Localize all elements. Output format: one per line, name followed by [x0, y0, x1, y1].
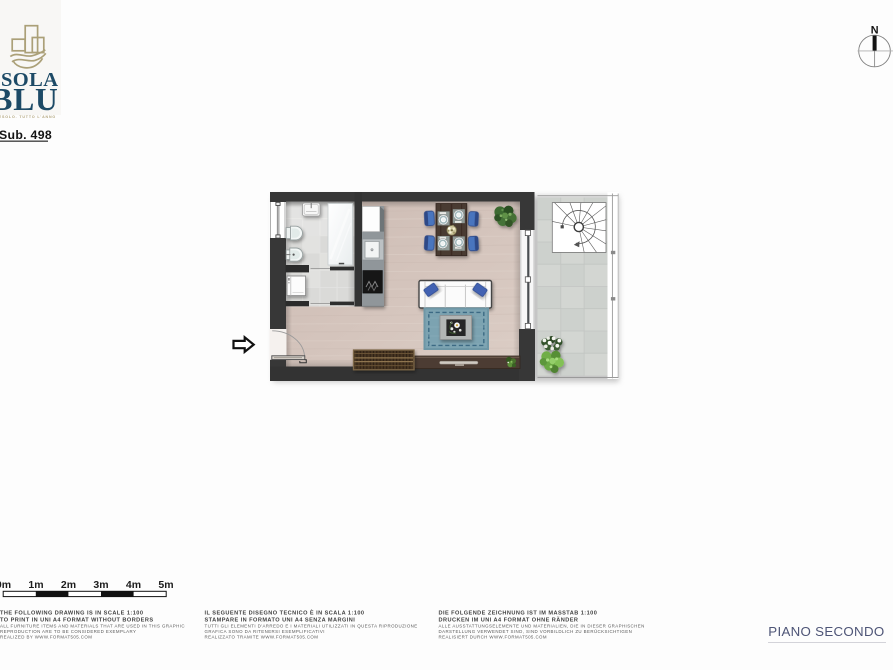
svg-text:IL SEGUENTE DISEGNO TECNICO È: IL SEGUENTE DISEGNO TECNICO È IN SCALA 1… [205, 608, 365, 616]
svg-text:REALIZZATO TRAMITE WWW.FORMAT5: REALIZZATO TRAMITE WWW.FORMAT505.COM [205, 635, 319, 640]
svg-text:ALLE AUSSTATTUNGSELEMENTE UND: ALLE AUSSTATTUNGSELEMENTE UND MATERIALIE… [439, 623, 645, 628]
svg-text:DARSTELLUNG VERWENDET SIND, SI: DARSTELLUNG VERWENDET SIND, SIND VORBILD… [439, 629, 633, 634]
svg-text:REALIZED BY WWW.FORMAT505.COM: REALIZED BY WWW.FORMAT505.COM [0, 635, 92, 640]
svg-text:3m: 3m [93, 579, 108, 591]
svg-text:Sub. 498: Sub. 498 [0, 128, 52, 142]
svg-text:THE FOLLOWING DRAWING IS IN SC: THE FOLLOWING DRAWING IS IN SCALE 1:100 [0, 610, 143, 616]
svg-text:REALISIERT DURCH WWW.FORMAT505: REALISIERT DURCH WWW.FORMAT505.COM [439, 635, 547, 640]
svg-text:2m: 2m [61, 579, 76, 591]
svg-text:BLU: BLU [0, 82, 59, 117]
svg-text:DIE FOLGENDE ZEICHNUNG IST IM: DIE FOLGENDE ZEICHNUNG IST IM MASSTAB 1:… [439, 610, 598, 616]
svg-text:ALL FURNITURE ITEMS AND MATERI: ALL FURNITURE ITEMS AND MATERIALS THAT A… [0, 623, 185, 628]
svg-text:GRAFICA SONO DA RITENERSI ESEM: GRAFICA SONO DA RITENERSI ESEMPLIFICATIV… [205, 629, 325, 634]
svg-text:4m: 4m [126, 579, 141, 591]
svg-text:JESOLO. TUTTO L'ANNO: JESOLO. TUTTO L'ANNO [0, 115, 56, 119]
svg-text:N: N [871, 25, 879, 37]
svg-text:TUTTI GLI ELEMENTI D'ARREDO E: TUTTI GLI ELEMENTI D'ARREDO E I MATERIAL… [205, 623, 418, 628]
svg-text:5m: 5m [158, 579, 173, 591]
svg-text:REPRODUCTION ARE TO BE CONSIDE: REPRODUCTION ARE TO BE CONSIDERED EXEMPL… [0, 629, 136, 634]
svg-text:PIANO SECONDO: PIANO SECONDO [768, 624, 884, 639]
svg-text:0m: 0m [0, 579, 11, 591]
svg-text:1m: 1m [28, 579, 43, 591]
